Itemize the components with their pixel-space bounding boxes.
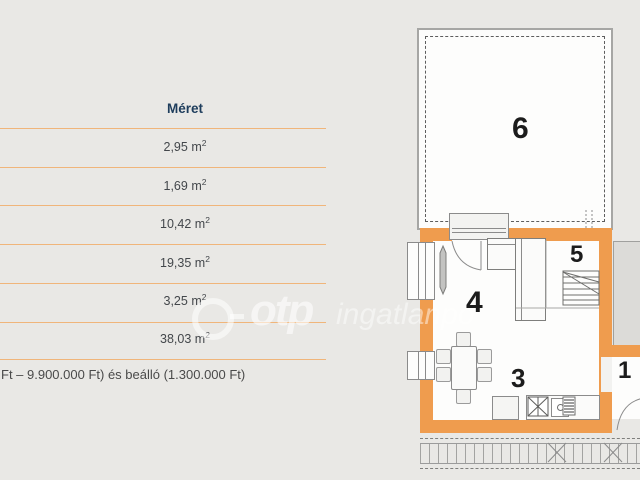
room-label-5: 5: [570, 241, 583, 269]
kitchen-counter: [526, 395, 600, 420]
room-label-6: 6: [512, 112, 529, 146]
chair: [477, 367, 492, 382]
window-frame-line: [425, 243, 426, 299]
window-tall: [407, 242, 435, 300]
sofa-back-line: [521, 239, 522, 320]
room-label-3: 3: [511, 363, 525, 394]
window-frame-line: [425, 352, 426, 379]
gray-annex-area: [613, 241, 640, 347]
window-frame-line: [418, 352, 419, 379]
floorplan-listing-page: Méret 2,95 m2 1,69 m2 10,42 m2 19,35 m2 …: [0, 0, 640, 480]
chair: [456, 332, 471, 347]
threshold-line: [452, 232, 506, 233]
sink-icon: [551, 398, 569, 417]
deck: [420, 438, 640, 469]
entrance-threshold: [449, 213, 509, 240]
threshold-line: [452, 228, 506, 229]
window-frame-line: [418, 243, 419, 299]
room-label-4: 4: [466, 286, 483, 320]
chair: [436, 349, 451, 364]
deck-boards-pattern: [420, 443, 640, 464]
sofa-vertical-section: [515, 238, 546, 321]
chair: [436, 367, 451, 382]
window-small: [407, 351, 435, 380]
room-6-terrace: 6: [417, 28, 613, 230]
dining-table: [451, 346, 477, 390]
faucet-icon: [557, 404, 564, 411]
floorplan: 6 1 4 5 3: [0, 0, 640, 480]
chair: [477, 349, 492, 364]
kitchen-cabinet: [492, 396, 519, 420]
annex-wall: [612, 345, 640, 357]
right-wall-door-gap: [601, 357, 612, 392]
chair: [456, 389, 471, 404]
room-label-1: 1: [618, 357, 631, 385]
